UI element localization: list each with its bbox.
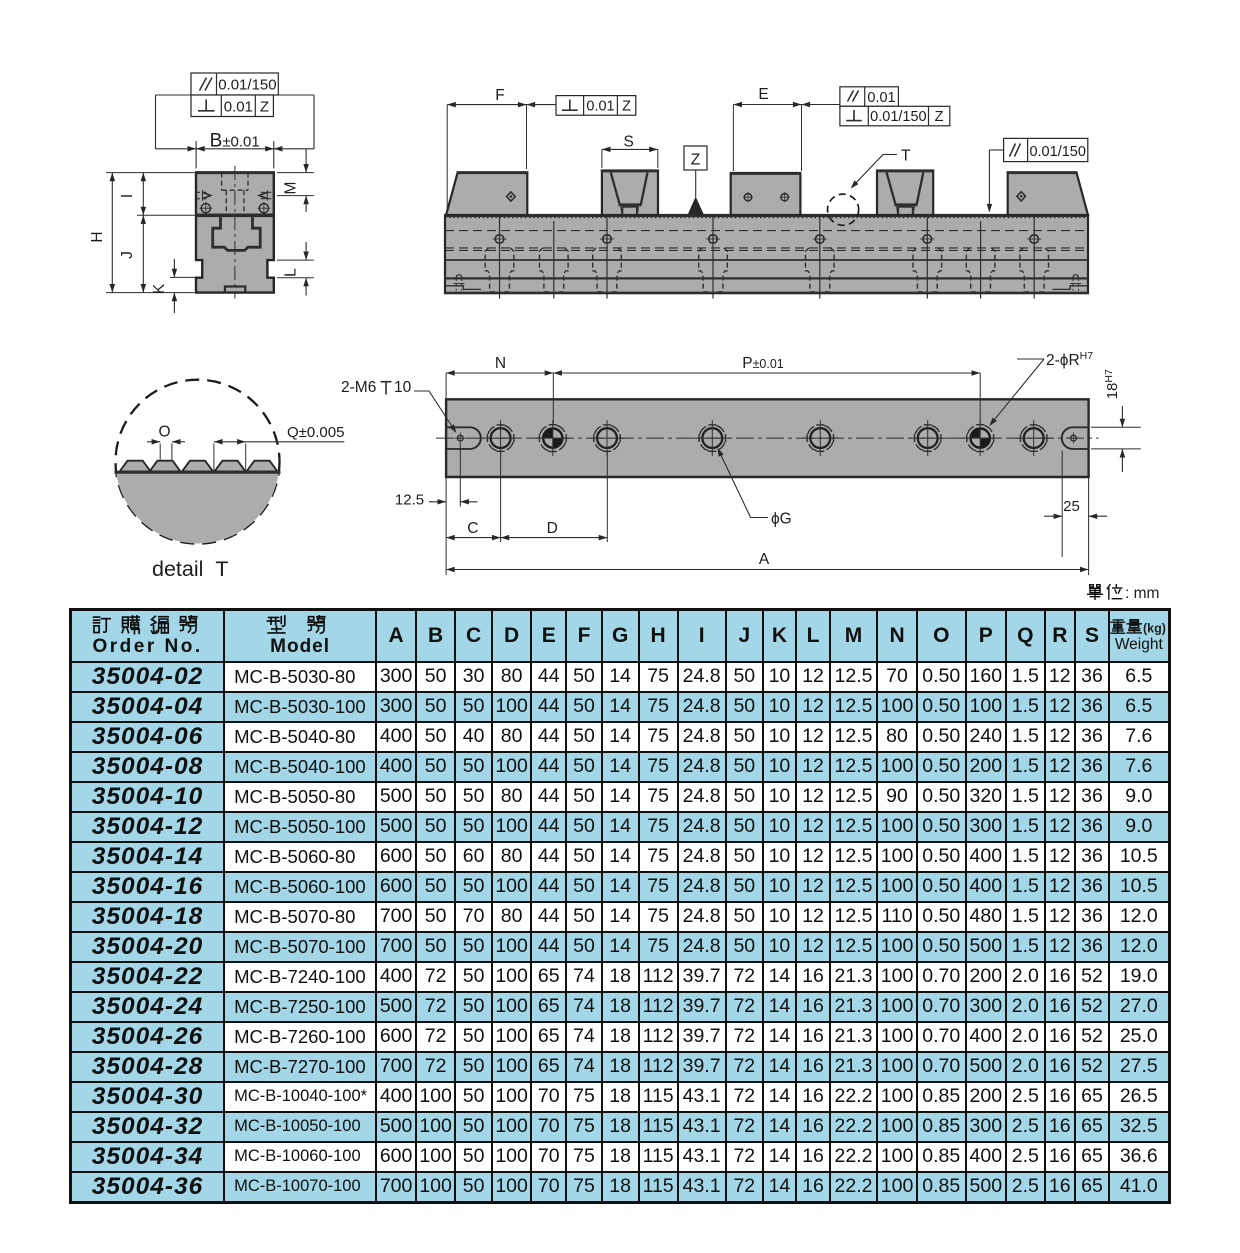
- svg-text:T: T: [901, 148, 911, 165]
- svg-text:25: 25: [1063, 498, 1080, 515]
- svg-text:S: S: [624, 134, 634, 151]
- svg-text:0.01: 0.01: [224, 98, 253, 115]
- svg-text:B±0.01: B±0.01: [210, 131, 260, 152]
- svg-text:C: C: [467, 520, 478, 537]
- svg-text:0.01/150: 0.01/150: [870, 109, 926, 125]
- svg-text:Z: Z: [622, 99, 631, 115]
- svg-text:I: I: [119, 194, 136, 198]
- svg-text:M: M: [283, 182, 300, 195]
- svg-text:N: N: [495, 355, 506, 372]
- svg-text:0.01/150: 0.01/150: [1029, 144, 1085, 160]
- svg-text:P±0.01: P±0.01: [742, 355, 784, 372]
- svg-text:K: K: [151, 283, 168, 294]
- svg-text:0.01/150: 0.01/150: [218, 77, 276, 94]
- svg-text:Z: Z: [691, 152, 700, 169]
- svg-text:E: E: [758, 86, 768, 103]
- svg-text:Q±0.005: Q±0.005: [287, 424, 344, 441]
- svg-text:10: 10: [394, 379, 412, 396]
- svg-text:(kg): (kg): [1143, 622, 1166, 636]
- svg-text:: mm: : mm: [1125, 585, 1159, 602]
- svg-text:Z: Z: [935, 109, 944, 125]
- svg-text:detail T: detail T: [152, 557, 228, 581]
- svg-text:Z: Z: [260, 98, 269, 115]
- svg-text:D: D: [547, 520, 558, 537]
- svg-text:2-M6: 2-M6: [341, 379, 376, 396]
- svg-text:F: F: [495, 87, 504, 104]
- svg-text:J: J: [119, 251, 136, 259]
- svg-text:L: L: [283, 268, 300, 277]
- svg-text:0.01: 0.01: [586, 99, 614, 115]
- svg-text:A: A: [759, 551, 770, 568]
- svg-text:0.01: 0.01: [867, 90, 895, 106]
- svg-text:O: O: [158, 424, 170, 441]
- svg-text:ϕG: ϕG: [771, 511, 792, 528]
- svg-text:H: H: [89, 231, 106, 242]
- svg-text:12.5: 12.5: [395, 492, 424, 509]
